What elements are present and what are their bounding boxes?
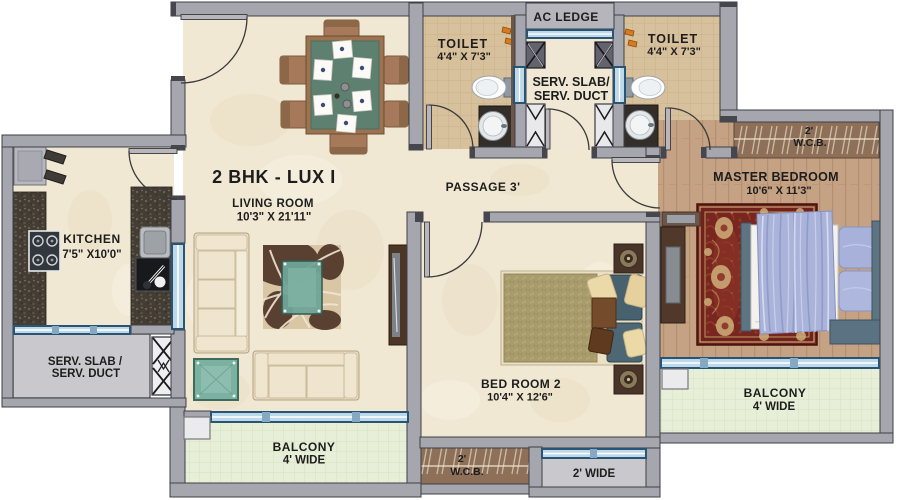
svg-text:2' WIDE: 2' WIDE bbox=[573, 468, 616, 480]
svg-text:SERV. SLAB /: SERV. SLAB / bbox=[48, 356, 123, 368]
svg-text:2 BHK - LUX I: 2 BHK - LUX I bbox=[212, 167, 336, 187]
svg-text:W.C.B.: W.C.B. bbox=[450, 466, 483, 478]
svg-text:2': 2' bbox=[458, 453, 466, 465]
svg-text:MASTER BEDROOM: MASTER BEDROOM bbox=[713, 170, 839, 184]
svg-text:4' WIDE: 4' WIDE bbox=[283, 455, 326, 467]
svg-text:SERV. SLAB/: SERV. SLAB/ bbox=[532, 75, 610, 89]
svg-text:10'6" X 11'3": 10'6" X 11'3" bbox=[746, 185, 811, 197]
svg-text:BALCONY: BALCONY bbox=[744, 386, 807, 400]
svg-text:2': 2' bbox=[805, 125, 813, 137]
svg-text:BALCONY: BALCONY bbox=[273, 440, 336, 454]
svg-text:4' WIDE: 4' WIDE bbox=[753, 401, 796, 413]
svg-text:BED ROOM 2: BED ROOM 2 bbox=[481, 377, 561, 391]
svg-text:TOILET: TOILET bbox=[438, 37, 488, 51]
svg-text:4'4" X 7'3": 4'4" X 7'3" bbox=[647, 46, 701, 58]
svg-text:4'4" X 7'3": 4'4" X 7'3" bbox=[437, 51, 491, 63]
svg-text:TOILET: TOILET bbox=[648, 32, 698, 46]
svg-text:PASSAGE 3': PASSAGE 3' bbox=[446, 180, 521, 194]
svg-text:LIVING ROOM: LIVING ROOM bbox=[232, 198, 314, 210]
svg-text:SERV. DUCT: SERV. DUCT bbox=[534, 89, 609, 103]
svg-text:SERV. DUCT: SERV. DUCT bbox=[52, 368, 120, 380]
svg-text:W.C.B.: W.C.B. bbox=[793, 137, 826, 149]
svg-text:KITCHEN: KITCHEN bbox=[63, 232, 121, 246]
svg-text:7'5" X10'0": 7'5" X10'0" bbox=[62, 249, 121, 261]
svg-text:AC LEDGE: AC LEDGE bbox=[533, 10, 598, 24]
svg-text:10'3" X 21'11": 10'3" X 21'11" bbox=[237, 212, 312, 224]
svg-text:10'4" X 12'6": 10'4" X 12'6" bbox=[487, 392, 553, 404]
